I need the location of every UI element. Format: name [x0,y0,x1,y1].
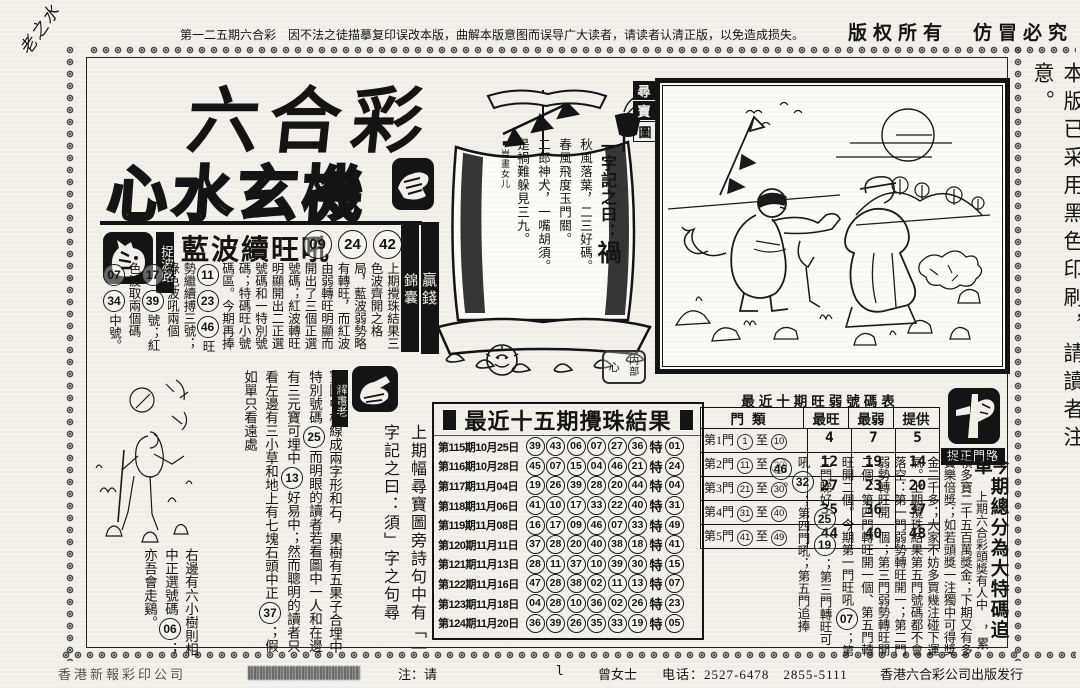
result-row: 第115期10月25日394306072736特01 [438,437,698,457]
special-ball: 15 [665,555,684,574]
text-segment: 。 [774,482,788,495]
draw-label: 第123期11月18日 [438,596,524,612]
lottery-ball: 28 [587,476,606,495]
special-label: 特 [650,594,663,613]
lottery-ball: 10 [587,555,606,574]
hot-cold-row: 第1門 1 至 10475 [701,428,939,452]
poem-line: 秋風落葉，二三好碼。 [574,138,595,310]
lottery-ball: 21 [628,457,647,476]
lottery-ball: 06 [567,437,586,456]
interpretation-tail-text: 右邊有六小樹則相中正選號碼06；亦吾會走鷄。 [88,548,200,656]
special-ball: 49 [665,516,684,535]
result-row: 第124期11月20日363926353319特05 [438,613,698,633]
lottery-ball: 39 [526,437,545,456]
text-segment: ，累積多寶二千五百萬獎金；下期又有多寶樂倍獎；如若頭獎一注獨中可得獎金二千多；大… [840,456,989,656]
barcode-smudge [248,666,360,680]
lottery-ball: 46 [770,458,792,480]
lottery-ball: 07 [608,516,627,535]
artist-seal [478,336,526,389]
lottery-ball: 23 [197,290,219,312]
forecast-subhead: 上期六合彩頭獎有人中 [975,491,989,611]
lottery-ball: 36 [628,437,647,456]
draw-label: 第116期10月28日 [438,458,524,474]
chain-border-left [64,44,76,661]
chain-border-top [88,44,1076,56]
lottery-ball: 17 [567,496,586,515]
special-label: 特 [650,476,663,495]
recent-results-table: 最近十五期攪珠結果 第115期10月25日394306072736特01第116… [432,402,704,640]
special-ball: 05 [665,614,684,633]
text-segment: 上期攪珠結果三色波齊開之格局，藍波弱勢略有轉旺，而紅波由弱轉旺明顯而開出了三個正… [220,262,399,350]
lottery-ball: 13 [628,574,647,593]
result-row: 第122期11月16日472838021113特07 [438,574,698,594]
draw-label: 第124期11月20日 [438,615,524,631]
hot-cold-table-title: 最近十期旺弱號碼表 [700,390,940,407]
lottery-ball: 36 [587,594,606,613]
special-ball: 23 [665,594,684,613]
lottery-ball: 17 [546,516,565,535]
lottery-ball: 07 [836,608,858,630]
scene-illustration [660,83,995,359]
lottery-ball: 11 [546,555,565,574]
special-label: 特 [650,437,663,456]
lottery-ball: 46 [197,316,219,338]
printer-name: 香港新報彩印公司 [58,664,186,683]
lottery-ball: 33 [608,614,627,633]
special-ball: 24 [665,457,684,476]
lottery-ball: 09 [567,516,586,535]
class-header: 門類 [701,408,804,428]
lottery-ball: 43 [546,437,565,456]
artist-credit: ■豈畫女儿 [499,138,511,310]
cold-header: 最弱 [849,408,894,428]
lottery-ball: 28 [526,555,545,574]
special-ball: 01 [665,437,684,456]
special-label: 特 [650,516,663,535]
anti-counterfeit-notice: 第一二五期六合彩 因不法之徒描摹复印误改本版，曲解本版意图而误导广大读者，请读者… [180,26,804,43]
lottery-ball: 04 [526,594,545,613]
result-row: 第120期11月11日372820403818特41 [438,535,698,555]
poem-line: 是禍難躲見三九。 [511,138,532,310]
special-ball: 04 [665,476,684,495]
lottery-ball: 32 [792,471,814,493]
footer-contact-name: 曾女士 [598,664,637,683]
special-ball: 07 [665,574,684,593]
lottery-ball: 18 [628,535,647,554]
footer-phone: 电话：2527-6478 2855-5111 [662,664,848,683]
lottery-ball: 06 [159,618,181,640]
footer-mark: l [556,664,564,679]
results-table-title: 最近十五期攪珠結果 [434,404,702,436]
special-label: 特 [650,496,663,515]
special-ball: 41 [665,535,684,554]
lottery-ball: 28 [546,574,565,593]
lottery-ball: 22 [608,496,627,515]
publisher-name: 香港六合彩公司出版发行 [880,664,1023,683]
result-row: 第116期10月28日450715044621特24 [438,457,698,477]
lottery-ball: 19 [814,534,836,556]
lottery-ball: 25 [303,426,325,448]
lottery-ball: 33 [587,496,606,515]
lottery-ball: 07 [546,457,565,476]
lottery-ball: 15 [567,457,586,476]
result-row: 第118期11月06日411017332240特31 [438,496,698,516]
lottery-ball: 30 [628,555,647,574]
lottery-ball: 26 [567,614,586,633]
lottery-ball: 07 [587,437,606,456]
special-label: 特 [650,535,663,554]
draw-label: 第120期11月11日 [438,537,524,553]
scene-illustration-frame [655,78,1010,374]
lottery-ball: 28 [546,535,565,554]
lottery-ball: 02 [608,594,627,613]
special-label: 特 [650,614,663,633]
lottery-ball: 25 [814,508,836,530]
chain-border-right [1012,44,1024,661]
lottery-ball: 37 [259,602,281,624]
lottery-ball: 04 [587,457,606,476]
gate-stamp-icon [948,388,1000,444]
sail-poem: 一字記之曰：禍 秋風落葉，二三好碼。 春風飛度玉門關。 二郎神犬，一嘴胡須。 是… [455,138,623,310]
interpretation-body-text: 寶圖中橫線成兩字形和石，果樹有五果子合埋中特別號碼25而明眼的讀者若看圖中一人和… [202,370,344,662]
special-label: 特 [650,555,663,574]
copyright-notice: 版权所有 仿冒必究 [848,18,1073,45]
result-row: 第119期11月08日161709460733特49 [438,515,698,535]
lottery-ball: 19 [526,476,545,495]
lottery-ball: 42 [373,230,402,259]
print-quality-note: 本版已采用黑色印刷，請讀者注意。 [1028,62,1080,482]
corner-handwriting: 老之水 [12,0,65,59]
footer-note: 注：请 [398,664,437,683]
lottery-ball: 02 [587,574,606,593]
blue-wave-analysis-text: 上期攪珠結果三色波齊開之格局，藍波弱勢略有轉旺，而紅波由弱轉旺明顯而開出了三個正… [104,262,400,359]
text-segment: 右邊有六小樹則相中正選號碼 [163,548,198,656]
lottery-ball: 10 [546,496,565,515]
treasure-sketch-illustration [88,372,200,553]
lottery-ball: 27 [608,437,627,456]
lottery-ball: 36 [526,614,545,633]
lottery-ball: 39 [546,614,565,633]
lottery-ball: 40 [587,535,606,554]
hot-value: 4 [808,429,852,452]
result-row: 第123期11月18日042810360226特23 [438,594,698,614]
lottery-ball: 20 [567,535,586,554]
lottery-ball: 40 [628,496,647,515]
lottery-ball: 39 [142,290,164,312]
lottery-ball: 39 [608,555,627,574]
lottery-ball: 17 [142,264,164,286]
interpreter-stamp-icon [352,366,398,412]
lottery-ball: 11 [608,574,627,593]
tip-pouch-label: 錦囊 [401,224,419,352]
lottery-ball: 16 [526,516,545,535]
masthead-title-line2: 心水玄機 [105,146,371,233]
lottery-ball: 13 [281,467,303,489]
hot-cold-header-row: 門類 最旺 最弱 提供 [701,408,939,428]
lottery-ball: 33 [628,516,647,535]
lottery-ball: 38 [567,574,586,593]
text-segment: ；第四門吼；第五門追捧 [796,495,810,633]
lottery-ball: 11 [197,264,219,286]
draw-label: 第122期11月16日 [438,576,524,592]
result-row: 第117期11月04日192639282044特04 [438,476,698,496]
lottery-ball: 26 [546,476,565,495]
lottery-ball: 47 [526,574,545,593]
forecast-text: 今期總分為大特碼追單 上期六合彩頭獎有人中 ，累積多寶二千五百萬獎金；下期又有多… [694,456,1006,657]
special-label: 特 [650,574,663,593]
lottery-ball: 26 [628,594,647,613]
newspaper-page: 老之水 第一二五期六合彩 因不法之徒描摹复印误改本版，曲解本版意图而误导广大读者… [0,0,1080,688]
draw-label: 第118期11月06日 [438,498,524,514]
lottery-ball: 19 [628,614,647,633]
lottery-ball: 44 [628,476,647,495]
lottery-ball: 37 [526,535,545,554]
poem-line: 二郎神犬，一嘴胡須。 [532,138,553,310]
text-segment: 中號。 [107,314,121,352]
draw-label: 第121期11月13日 [438,556,524,572]
lottery-ball: 34 [103,290,125,312]
lottery-ball: 46 [587,516,606,535]
treasure-map-seal: 尋 寶 圖 [633,80,657,143]
lottery-ball: 37 [567,555,586,574]
gate-range: 第1門 1 至 10 [701,429,808,452]
blue-wave-numbers: 092442 [300,230,405,259]
hot-header: 最旺 [804,408,849,428]
draw-label: 第115期10月25日 [438,439,524,455]
lottery-ball: 39 [567,476,586,495]
tip-value: 5 [896,429,939,452]
masthead-rule [100,221,422,225]
draw-label: 第119期11月08日 [438,517,524,533]
draw-label: 第117期11月04日 [438,478,524,494]
lottery-ball: 10 [567,594,586,613]
inner-seal: 心 内部 [602,350,646,384]
lottery-ball: 28 [546,594,565,613]
result-row: 第121期11月13日281137103930特15 [438,555,698,575]
lottery-ball: 20 [608,476,627,495]
lottery-ball: 46 [608,457,627,476]
tip-header: 提供 [894,408,938,428]
lottery-ball: 24 [338,230,367,259]
interpretation-intro-text: 上期幅尋寶圖旁詩句中有「一字記之曰：須」字之句尋 [348,424,430,664]
poem-line: 春風飛度玉門關。 [553,138,574,310]
cold-value: 7 [852,429,896,452]
motto-line: 一字記之曰：禍 [595,138,617,310]
special-label: 特 [650,457,663,476]
lottery-ball: 35 [587,614,606,633]
lottery-ball: 41 [526,496,545,515]
lottery-ball: 07 [103,264,125,286]
lottery-ball: 38 [608,535,627,554]
results-rows: 第115期10月25日394306072736特01第116期10月28日450… [434,436,702,634]
lottery-ball: 09 [303,230,332,259]
lottery-ball: 45 [526,457,545,476]
special-ball: 31 [665,496,684,515]
